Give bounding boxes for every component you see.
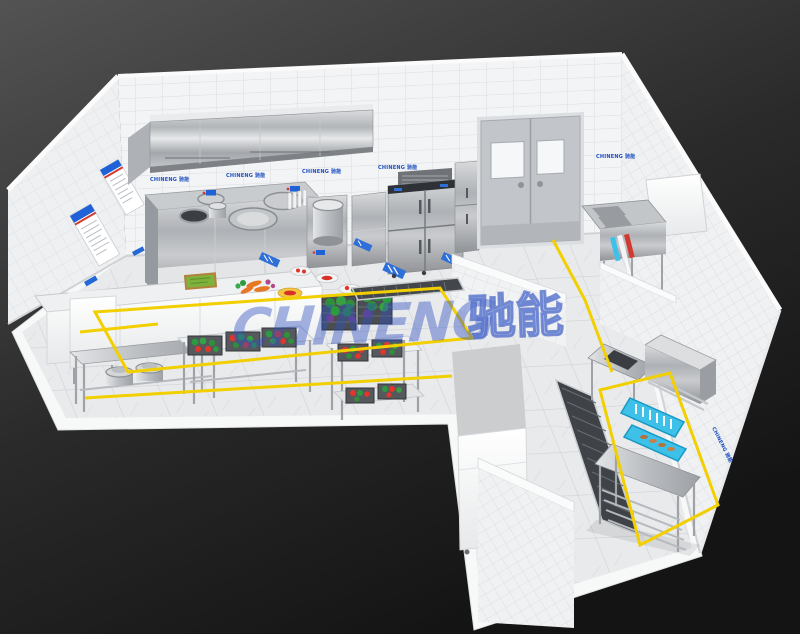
wall-label: CHINENG 驰能 <box>378 164 417 171</box>
wall-label: CHINENG 驰能 <box>596 153 635 160</box>
door-handle <box>537 181 543 187</box>
double-swing-door <box>477 112 584 249</box>
control-panel <box>290 186 300 192</box>
door-handle <box>518 182 524 188</box>
small-pot <box>209 203 226 219</box>
wall-label: CHINENG 驰能 <box>150 176 189 183</box>
control-panel <box>206 190 216 196</box>
veg-tray <box>346 388 374 403</box>
kitchen-scene-svg: CHINENG 驰能 CHINENG 驰能 CHINENG 驰能 CHINENG… <box>0 0 800 634</box>
soup-kettle-stand <box>352 192 386 266</box>
stock-pot-boiler <box>307 195 347 268</box>
wall-label: CHINENG 驰能 <box>302 168 341 175</box>
wall-label: CHINENG 驰能 <box>226 172 265 179</box>
tall-cabinet <box>455 161 479 253</box>
watermark-latin: CHINENG <box>230 288 497 360</box>
cutting-board <box>185 273 216 289</box>
watermark-cn: 驰能 <box>467 287 565 346</box>
veg-tray <box>378 384 406 399</box>
control-panel <box>316 250 325 255</box>
kitchen-3d-render: CHINENG 驰能 CHINENG 驰能 CHINENG 驰能 CHINENG… <box>0 0 800 634</box>
